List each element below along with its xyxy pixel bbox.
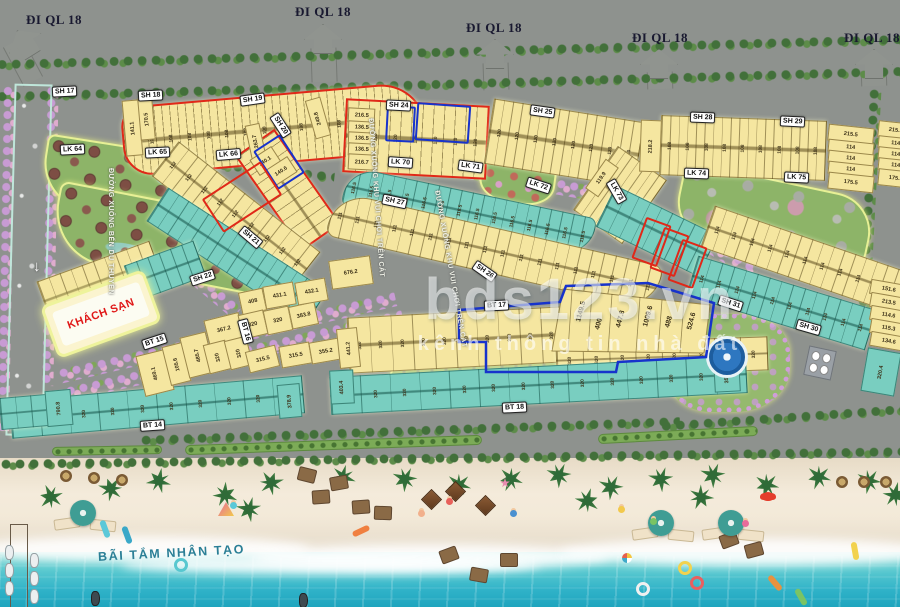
svg-text:1149.5: 1149.5	[575, 300, 587, 322]
person-figure	[230, 502, 237, 509]
beach-umbrella-icon	[718, 510, 744, 536]
boat	[5, 545, 14, 560]
fountain-pool	[706, 336, 748, 378]
master-plan-map: 1149.5400447.81009.6488524.6 KHÁCH SẠN B…	[0, 0, 900, 607]
tree-row	[0, 65, 900, 103]
utility-building	[803, 345, 837, 380]
block-label-lk-70: LK 70	[388, 156, 414, 169]
boat	[30, 571, 39, 586]
block-label-lk-65: LK 65	[145, 146, 171, 158]
hotel-label: KHÁCH SẠN	[66, 296, 136, 331]
lot-cell: 175.5	[877, 168, 900, 189]
wooden-platform	[312, 489, 331, 504]
block-label-lk-75: LK 75	[784, 171, 810, 183]
person-figure	[446, 498, 453, 505]
boat	[91, 591, 100, 606]
swim-ring-icon	[678, 561, 692, 575]
lot-cell: 676.2	[328, 255, 374, 290]
boat	[30, 589, 39, 604]
svg-text:447.8: 447.8	[615, 310, 626, 329]
person-figure	[618, 506, 625, 513]
beach-chair-icon	[60, 470, 72, 482]
green-median	[52, 445, 162, 456]
down-arrow: ↓	[33, 258, 41, 275]
svg-text:488: 488	[664, 315, 674, 328]
person-figure	[510, 510, 517, 517]
blue-highlight-rect	[415, 102, 472, 144]
swim-ring-icon	[636, 582, 650, 596]
beach-chair-icon	[836, 476, 848, 488]
block-label-lk-74: LK 74	[684, 168, 709, 180]
exit-label-2: ĐI QL 18	[295, 4, 351, 20]
block-label-bt-14: BT 14	[140, 419, 166, 432]
wooden-platform	[374, 506, 392, 521]
lot-cell: 403.4	[329, 369, 355, 404]
crab-icon	[762, 492, 774, 501]
block-label-sh-24: SH 24	[386, 99, 412, 111]
exit-label-3: ĐI QL 18	[466, 20, 522, 36]
lot-cell: 175.5	[827, 172, 875, 194]
lot-cell: 790.8	[44, 389, 73, 427]
boat	[5, 581, 14, 596]
beach-chair-icon	[88, 472, 100, 484]
lot-cell: 320.4	[860, 347, 900, 396]
block-label-sh-29: SH 29	[780, 115, 806, 127]
exit-label-5: ĐI QL 18	[844, 30, 900, 46]
person-figure	[742, 520, 749, 527]
block-label-sh-18: SH 18	[138, 89, 164, 101]
block-label-sh-28: SH 28	[690, 112, 716, 124]
lot-cell: 432.1	[294, 277, 329, 305]
boat	[5, 563, 14, 578]
block-label-bt-17: BT 17	[484, 299, 510, 311]
lot-cell: 378.9	[277, 383, 303, 419]
wooden-platform	[500, 553, 518, 567]
block-label-lk-66: LK 66	[216, 148, 242, 161]
boat	[30, 553, 39, 568]
road-name-label-1: ĐƯỜNG XUỐNG BẾN DU THUYỀN	[107, 168, 114, 295]
lot-cell: 218.2	[639, 120, 662, 173]
person-figure	[650, 518, 657, 525]
beach-chair-icon	[880, 476, 892, 488]
lot-band-bt14-left	[0, 394, 49, 430]
svg-text:400: 400	[594, 317, 604, 330]
exit-label-1: ĐI QL 18	[26, 12, 82, 28]
lot-cell: 383.8	[288, 301, 319, 329]
lot-cell: 315.5	[278, 341, 312, 368]
person-figure	[418, 510, 425, 517]
tree-row	[0, 33, 900, 71]
wooden-platform	[469, 567, 489, 584]
wooden-platform	[352, 499, 371, 514]
swim-ring-icon	[690, 576, 704, 590]
beach-umbrella-icon	[70, 500, 96, 526]
boat	[299, 593, 308, 607]
lot-cell: 441.2	[336, 327, 361, 369]
beach-ball-icon	[622, 553, 632, 563]
swim-ring-icon	[174, 558, 188, 572]
block-label-lk-64: LK 64	[60, 143, 86, 155]
block-label-bt-18: BT 18	[502, 401, 528, 413]
beach-chair-icon	[858, 476, 870, 488]
exit-label-4: ĐI QL 18	[632, 30, 688, 46]
block-label-sh-17: SH 17	[52, 85, 78, 97]
beach-chair-icon	[116, 474, 128, 486]
